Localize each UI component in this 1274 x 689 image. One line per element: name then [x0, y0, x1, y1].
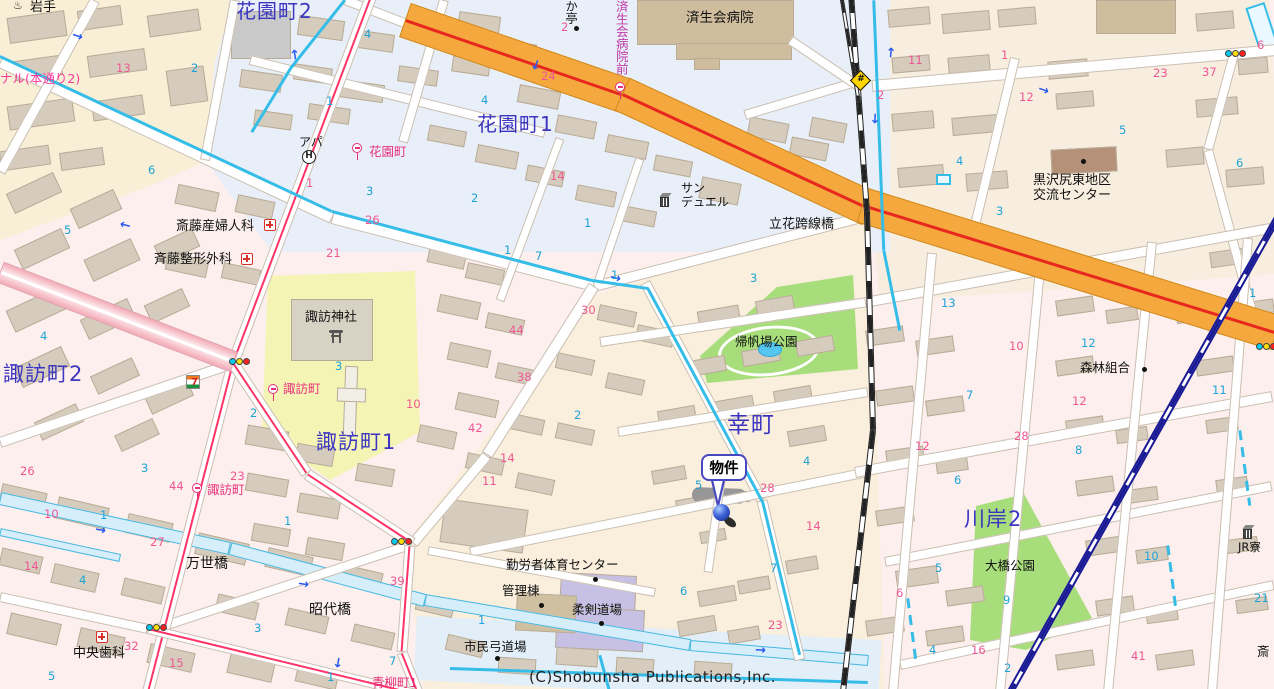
bus-stop-label-hanazonocho: 花園町 — [369, 145, 407, 160]
building — [455, 392, 500, 418]
district-label-suwacho2: 諏訪町2 — [3, 362, 83, 387]
block-number: 27 — [150, 535, 165, 549]
block-number: 2 — [574, 408, 581, 422]
bus-stop-label-suwacho: 諏訪町 — [283, 382, 321, 397]
road-centerline — [401, 546, 411, 651]
block-number: 16 — [971, 643, 986, 657]
block-number: 12 — [1081, 336, 1096, 350]
building — [1055, 649, 1095, 670]
building — [174, 184, 219, 212]
block-number: 4 — [803, 454, 810, 468]
block-number: 23 — [768, 618, 783, 632]
block-number: 32 — [124, 639, 139, 653]
block-number: 5 — [64, 223, 71, 237]
saiseikai-hospital-building — [694, 58, 720, 70]
block-number: 41 — [1131, 649, 1146, 663]
property-callout[interactable]: 物件 — [701, 454, 747, 481]
building — [245, 472, 289, 497]
poi-label-shodai-bridge: 昭代橋 — [309, 602, 351, 619]
block-number: 1 — [306, 176, 313, 190]
shrine-path — [337, 387, 366, 402]
block-number: 1 — [1249, 286, 1256, 300]
label-aoyagicho1: 青柳町1 — [372, 676, 417, 689]
block-number: 9 — [1003, 593, 1010, 607]
block-number: 7 — [389, 654, 396, 668]
torii-icon — [329, 330, 343, 343]
block-number: 15 — [169, 656, 184, 670]
block-number: 10 — [406, 397, 421, 411]
poi-label-tachibana-overpass: 立花跨線橋 — [769, 217, 834, 232]
poi-label-chuo-dental: 中央歯科 — [73, 646, 125, 661]
traffic-light-icon — [1225, 50, 1246, 57]
block-number: 5 — [48, 669, 55, 683]
block-number: 10 — [1009, 339, 1024, 353]
building — [1195, 10, 1234, 31]
building — [997, 6, 1036, 27]
block-number: 23 — [230, 469, 245, 483]
block-number: 4 — [364, 27, 371, 41]
block-number: 14 — [24, 559, 39, 573]
block-number: 14 — [806, 519, 821, 533]
block-number: 14 — [500, 451, 515, 465]
block-number: 1 — [504, 243, 511, 257]
block-number: 44 — [509, 323, 524, 337]
building — [891, 110, 934, 132]
block-number: 26 — [365, 213, 380, 227]
block-number: 23 — [1153, 66, 1168, 80]
block-number: 2 — [191, 61, 198, 75]
block-number: 1 — [611, 268, 618, 282]
bus-stop-icon — [192, 483, 203, 500]
block-number: 1 — [1001, 48, 1008, 62]
block-number: 8 — [1075, 443, 1082, 457]
poi-label-workers-gym: 勤労者体育センター — [506, 558, 619, 573]
hospital-icon — [241, 253, 253, 265]
poi-label-mansei-bridge: 万世橋 — [186, 556, 228, 573]
building — [355, 463, 396, 487]
building — [1055, 90, 1094, 109]
block-number: 3 — [996, 204, 1003, 218]
block-number: 7 — [966, 388, 973, 402]
district-label-kawagishi2: 川岸2 — [964, 507, 1022, 532]
block-number: 5 — [695, 478, 702, 492]
district-label-hanazonocho1: 花園町1 — [477, 113, 554, 137]
block-number: 21 — [1254, 591, 1269, 605]
seven-eleven-icon: 7 — [186, 375, 200, 389]
block-number: 6 — [1236, 156, 1243, 170]
block-number: 1 — [326, 94, 333, 108]
building-3d-icon — [1243, 524, 1256, 539]
building — [875, 385, 915, 406]
building — [1237, 57, 1268, 76]
water-pool — [936, 174, 951, 185]
building — [1055, 295, 1095, 316]
hospital-icon — [264, 219, 276, 231]
block-number: 4 — [40, 329, 47, 343]
block-number: 2 — [250, 406, 257, 420]
traffic-light-icon — [1256, 343, 1274, 350]
poi-label-civic-archery-hall: 市民弓道場 — [464, 640, 527, 655]
block-number: 28 — [760, 481, 775, 495]
building — [887, 6, 930, 28]
bus-stop-label-saiseikai-hospital-front: 済生会病院前 — [613, 0, 628, 75]
building — [90, 357, 140, 395]
block-number: 4 — [929, 643, 936, 657]
block-number: 5 — [935, 561, 942, 575]
block-number: 14 — [550, 169, 565, 183]
building — [417, 424, 458, 450]
poi-dot-icon — [574, 26, 579, 31]
block-number: 4 — [79, 573, 86, 587]
block-number: 6 — [954, 473, 961, 487]
poi-label-forest-union: 森林組合 — [1080, 361, 1130, 376]
building — [925, 395, 965, 416]
block-number: 2 — [471, 191, 478, 205]
building — [1225, 166, 1264, 187]
poi-label-admin-building: 管理棟 — [502, 584, 540, 599]
block-number: 1 — [327, 670, 334, 684]
one-way-arrow-icon: → — [755, 644, 767, 658]
district-label-hanazonocho2: 花園町2 — [236, 0, 313, 24]
poi-label-kihanba-park: 帰帆場公園 — [735, 335, 798, 350]
building — [166, 66, 209, 107]
block-number: 11 — [908, 53, 923, 67]
one-way-arrow-icon: → — [94, 523, 107, 538]
poi-label-katei: か亭 — [564, 0, 578, 24]
monument-icon: ♨ — [13, 0, 24, 12]
building — [1155, 649, 1195, 670]
block-number: 3 — [141, 461, 148, 475]
poi-dot-icon — [539, 603, 544, 608]
map-canvas: 物件 (C)Shobunsha Publications,Inc. #7H♨花園… — [0, 0, 1274, 689]
block-number: 28 — [1014, 429, 1029, 443]
poi-label-jr-dormitory: JR寮 — [1238, 541, 1261, 555]
one-way-arrow-icon: → — [288, 48, 302, 61]
block-number: 3 — [335, 359, 342, 373]
poi-label-iwate: 岩手 — [30, 0, 56, 15]
poi-label-apa-hotel: アパ — [299, 135, 323, 149]
block-number: 3 — [254, 621, 261, 635]
poi-label-saiseikai-hospital: 済生会病院 — [686, 11, 754, 27]
block-number: 6 — [680, 584, 687, 598]
building — [121, 578, 166, 605]
building — [555, 647, 598, 668]
poi-label-saito-obgyn: 斎藤産婦人科 — [176, 219, 254, 234]
block-number: 7 — [770, 561, 777, 575]
poi-label-edge-cut: 斎 — [1257, 645, 1270, 660]
building — [83, 238, 140, 282]
poi-dot-icon — [495, 656, 500, 661]
building-3d-icon — [660, 192, 673, 207]
label-naru-hondori2: ナル(本通り2) — [0, 72, 80, 87]
block-number: 5 — [1119, 123, 1126, 137]
block-number: 4 — [481, 93, 488, 107]
district-label-saiwaicho: 幸町 — [727, 412, 775, 439]
building — [437, 294, 482, 320]
block-number: 6 — [896, 586, 903, 600]
block-number: 7 — [535, 249, 542, 263]
district-label-suwacho1: 諏訪町1 — [316, 430, 396, 455]
block-number: 1 — [284, 514, 291, 528]
block-number: 12 — [1072, 394, 1087, 408]
block-number: 2 — [1004, 661, 1011, 675]
block-number: 6 — [148, 163, 155, 177]
block-number: 39 — [390, 574, 405, 588]
one-way-arrow-icon: → — [868, 113, 881, 124]
block-number: 26 — [20, 464, 35, 478]
poi-label-sun-duel: サン デュエル — [681, 181, 729, 209]
block-number: 13 — [941, 296, 956, 310]
large-building — [1096, 0, 1176, 34]
block-number: 12 — [1019, 90, 1034, 104]
block-number: 4 — [956, 154, 963, 168]
traffic-light-icon — [146, 624, 167, 631]
block-number: 11 — [1212, 383, 1227, 397]
block-number: 38 — [517, 370, 532, 384]
stream-dashed — [907, 598, 917, 660]
block-number: 6 — [1257, 38, 1264, 52]
bus-stop-icon — [615, 82, 626, 99]
bus-stop-icon — [268, 384, 279, 401]
block-number: 3 — [366, 184, 373, 198]
one-way-arrow-icon: → — [885, 47, 899, 59]
building — [351, 624, 396, 651]
block-number: 1 — [584, 216, 591, 230]
hotel-icon: H — [302, 150, 316, 164]
poi-dot-icon — [1142, 367, 1147, 372]
bus-stop-label-suwacho: 諏訪町 — [207, 483, 245, 498]
poi-dot-icon — [599, 621, 604, 626]
building — [1105, 306, 1139, 324]
block-number: 10 — [44, 507, 59, 521]
block-number: 12 — [915, 439, 930, 453]
block-number: 3 — [750, 271, 757, 285]
building — [14, 228, 70, 270]
block-number: 44 — [169, 479, 184, 493]
poi-label-saito-orthopedics: 斉藤整形外科 — [154, 252, 232, 267]
block-number: 11 — [482, 474, 497, 488]
block-number: 42 — [468, 421, 483, 435]
traffic-light-icon — [391, 538, 412, 545]
poi-label-community-center: 黒沢尻東地区 交流センター — [1002, 173, 1142, 204]
block-number: 2 — [877, 88, 884, 102]
building — [941, 10, 991, 34]
one-way-arrow-icon: → — [330, 656, 345, 669]
block-number: 1 — [478, 613, 485, 627]
poi-label-ohashi-park: 大橋公園 — [985, 559, 1035, 574]
copyright-text: (C)Shobunsha Publications,Inc. — [529, 668, 776, 686]
property-pin[interactable] — [713, 504, 730, 521]
building — [1165, 146, 1204, 167]
block-number: 37 — [1202, 65, 1217, 79]
traffic-light-icon — [229, 358, 250, 365]
poi-label-judo-kendo-hall: 柔剣道場 — [572, 603, 622, 618]
building — [447, 342, 492, 368]
poi-label-suwa-shrine: 諏訪神社 — [305, 310, 357, 325]
stream-dashed — [1167, 545, 1177, 608]
block-number: 21 — [326, 246, 341, 260]
poi-dot-icon — [1081, 159, 1086, 164]
block-number: 1 — [100, 508, 107, 522]
one-way-arrow-icon: → — [119, 217, 133, 232]
building — [50, 563, 99, 593]
building — [1075, 475, 1115, 496]
building — [6, 612, 62, 645]
block-number: 24 — [541, 69, 556, 83]
poi-dot-icon — [593, 577, 598, 582]
bus-stop-icon — [352, 143, 363, 160]
block-number: 30 — [581, 303, 596, 317]
hospital-icon — [96, 631, 108, 643]
block-number: 10 — [1144, 549, 1159, 563]
building — [114, 418, 160, 452]
block-number: 13 — [116, 61, 131, 75]
one-way-arrow-icon: → — [297, 577, 310, 591]
